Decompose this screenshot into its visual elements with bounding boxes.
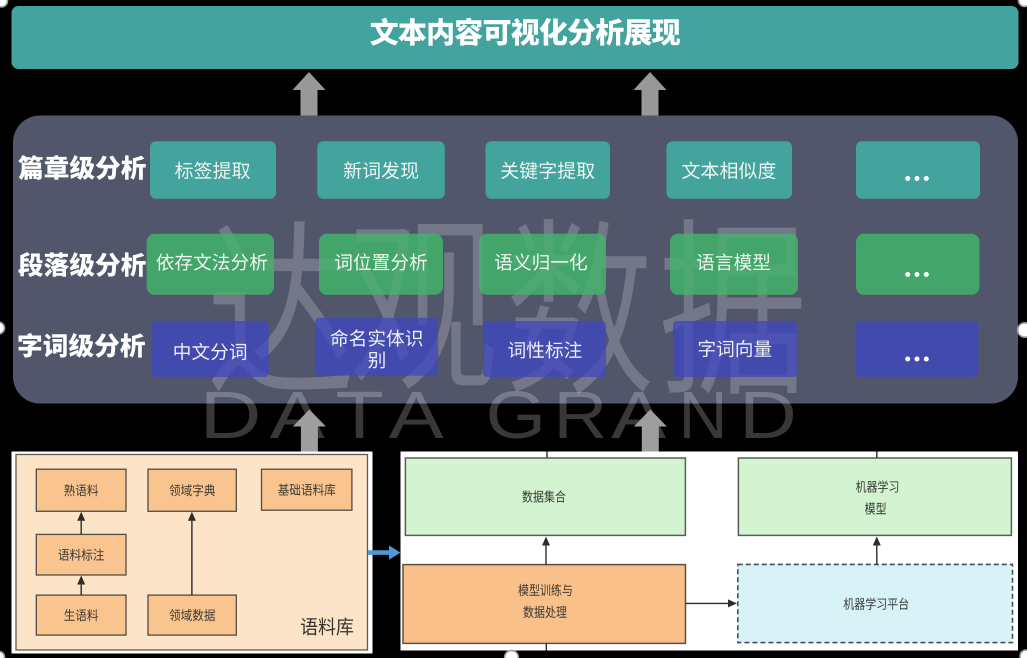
svg-text:A: A <box>389 377 444 452</box>
svg-text:R: R <box>553 377 607 452</box>
svg-text:N: N <box>679 378 728 453</box>
svg-text:D: D <box>200 378 262 453</box>
svg-text:T: T <box>335 378 383 453</box>
svg-text:G: G <box>486 378 546 453</box>
svg-text:D: D <box>739 377 797 453</box>
